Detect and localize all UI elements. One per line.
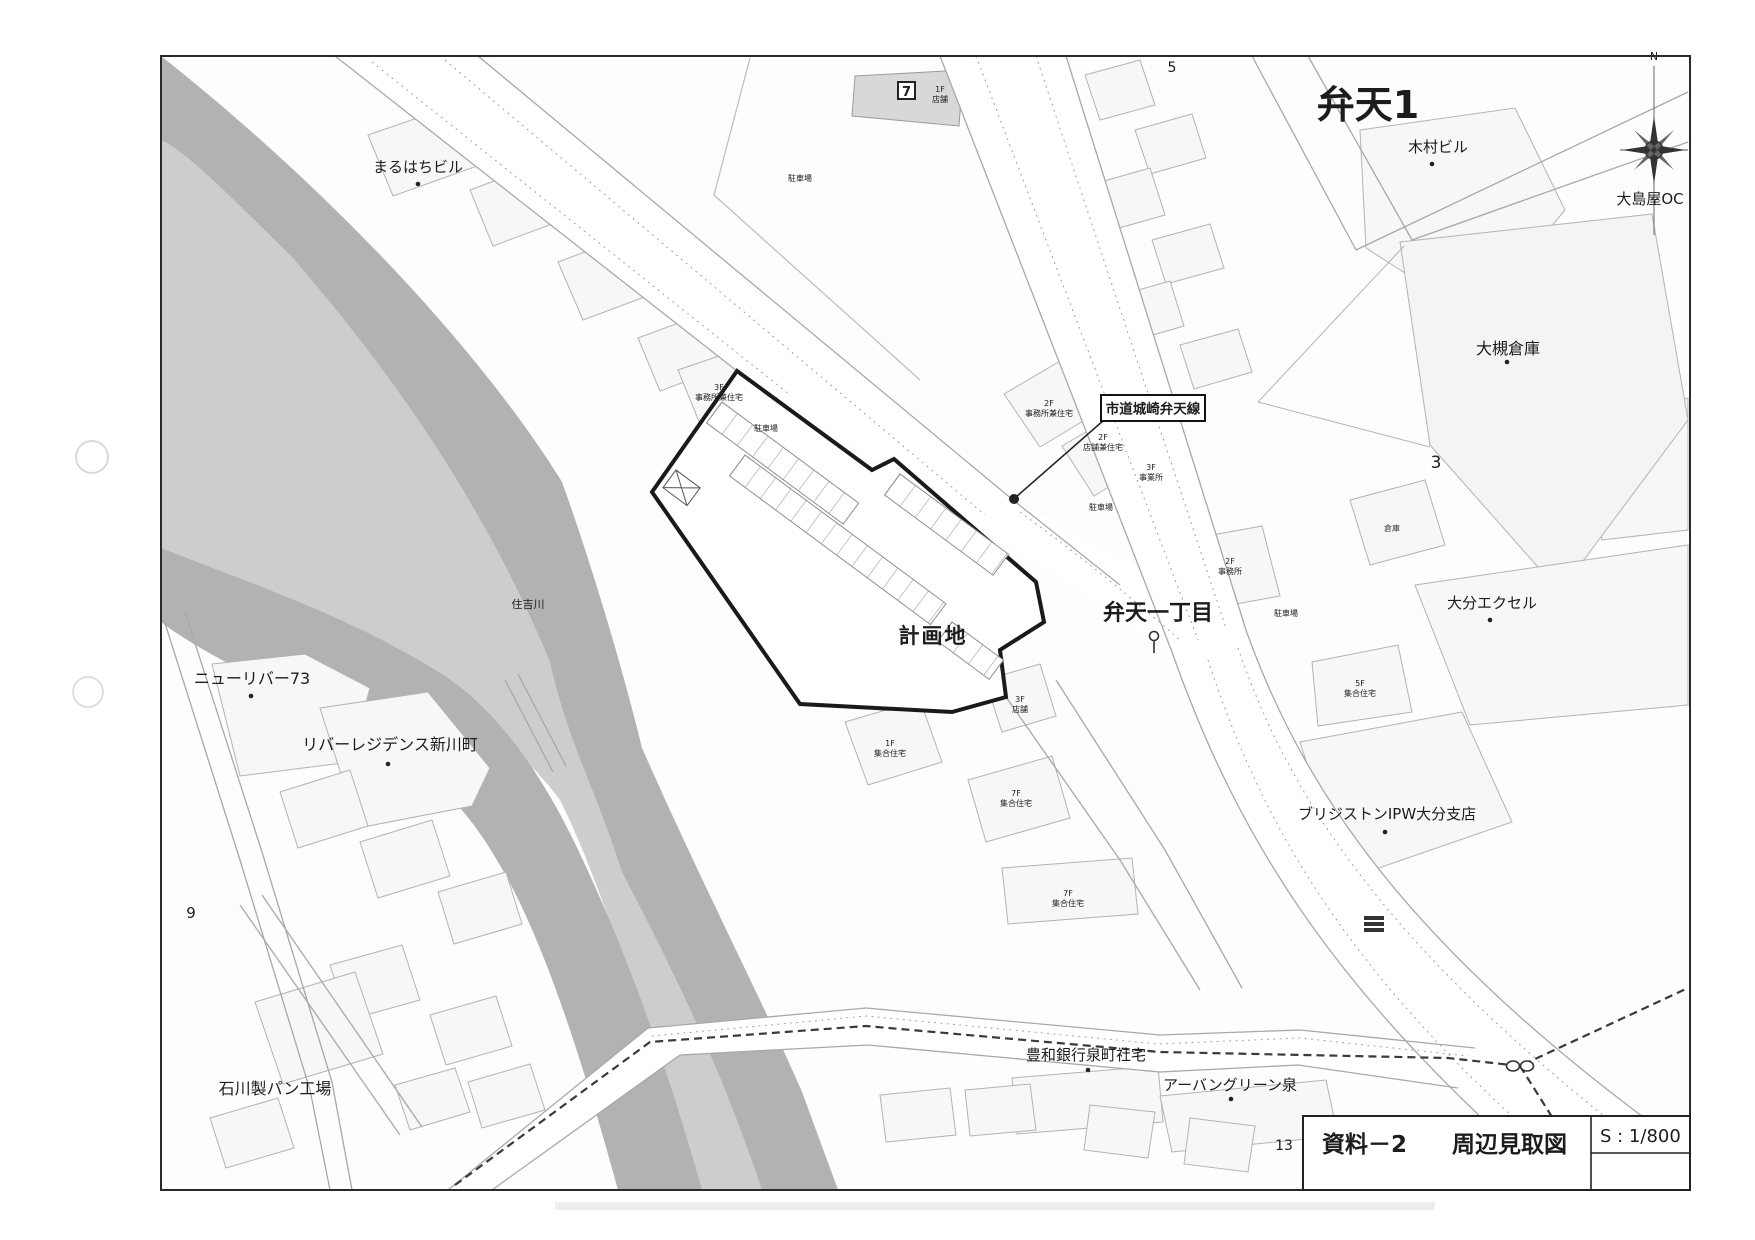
- title-block: 資料－2 周辺見取図 S : 1/800: [1303, 1116, 1690, 1190]
- small-label: 駐車場: [754, 423, 778, 433]
- small-label: 7F: [1063, 889, 1073, 898]
- callout-dot: [1009, 494, 1019, 504]
- small-label: 事務所兼住宅: [695, 392, 743, 402]
- small-label: 事務所: [1218, 566, 1242, 576]
- small-label: 2F: [1098, 433, 1108, 442]
- small-label: 集合住宅: [1000, 798, 1032, 808]
- small-label: 1F: [935, 85, 945, 94]
- small-label: 3F: [1015, 695, 1025, 704]
- label-district: 弁天一丁目: [1103, 600, 1213, 626]
- label-bridgestone: ブリジストンIPW大分支店: [1298, 805, 1476, 823]
- small-label: 店舗兼住宅: [1083, 442, 1123, 452]
- small-label: 3F: [714, 383, 724, 392]
- small-label: 駐車場: [1089, 502, 1113, 512]
- bridge-bars-icon: [1364, 916, 1384, 932]
- small-label: 2F: [1044, 399, 1054, 408]
- road-callout-label: 市道城崎弁天線: [1106, 401, 1201, 418]
- building: [965, 1084, 1036, 1136]
- label-maruhachi: まるはちビル: [373, 158, 463, 176]
- area-title: 弁天1: [1317, 83, 1419, 127]
- small-label: 事業所: [1139, 472, 1163, 482]
- label-kimura: 木村ビル: [1408, 138, 1468, 156]
- small-label: 3F: [1146, 463, 1156, 472]
- label-howa: 豊和銀行泉町社宅: [1026, 1046, 1146, 1064]
- small-label: 駐車場: [788, 173, 812, 183]
- label-newriver: ニューリバー73: [194, 669, 310, 688]
- small-label: 集合住宅: [1344, 688, 1376, 698]
- label-oshimaya: 大島屋OC: [1616, 190, 1683, 208]
- building: [880, 1088, 956, 1142]
- block-number-13: 13: [1275, 1138, 1293, 1154]
- building: [1084, 1105, 1155, 1158]
- doc-number: 資料－2: [1322, 1131, 1407, 1158]
- small-label: 集合住宅: [874, 748, 906, 758]
- block-number-3: 3: [1431, 453, 1442, 473]
- site-map-svg: 7 N 市道城崎弁天線 弁天1 5: [0, 0, 1755, 1240]
- small-label: 1F: [885, 739, 895, 748]
- small-label: 店舗: [932, 94, 948, 104]
- small-label: 店舗: [1012, 704, 1028, 714]
- doc-title: 周辺見取図: [1452, 1132, 1567, 1158]
- label-souko: 倉庫: [1384, 523, 1400, 533]
- store-icon-glyph: 7: [902, 85, 911, 100]
- small-label: 事務所兼住宅: [1025, 408, 1073, 418]
- block-number-9: 9: [186, 904, 196, 922]
- small-label: 駐車場: [1274, 608, 1298, 618]
- label-urban: アーバングリーン泉: [1163, 1076, 1297, 1094]
- block-number-5: 5: [1168, 60, 1177, 76]
- scale-label: S : 1/800: [1600, 1126, 1681, 1147]
- label-river: 住吉川: [512, 597, 545, 611]
- label-excel: 大分エクセル: [1447, 594, 1537, 612]
- label-riverres: リバーレジデンス新川町: [302, 735, 478, 754]
- small-label: 5F: [1355, 679, 1365, 688]
- small-label: 2F: [1225, 557, 1235, 566]
- seven-eleven-icon: 7: [898, 82, 915, 100]
- label-planned-site: 計画地: [899, 624, 968, 648]
- label-ishikawa: 石川製パン工場: [219, 1079, 332, 1098]
- label-otsuki: 大槻倉庫: [1476, 339, 1540, 358]
- small-label: 集合住宅: [1052, 898, 1084, 908]
- building: [1184, 1118, 1255, 1172]
- scan-shadow: [555, 1202, 1435, 1210]
- scanned-map-page: 7 N 市道城崎弁天線 弁天1 5: [0, 0, 1755, 1240]
- small-label: 7F: [1011, 789, 1021, 798]
